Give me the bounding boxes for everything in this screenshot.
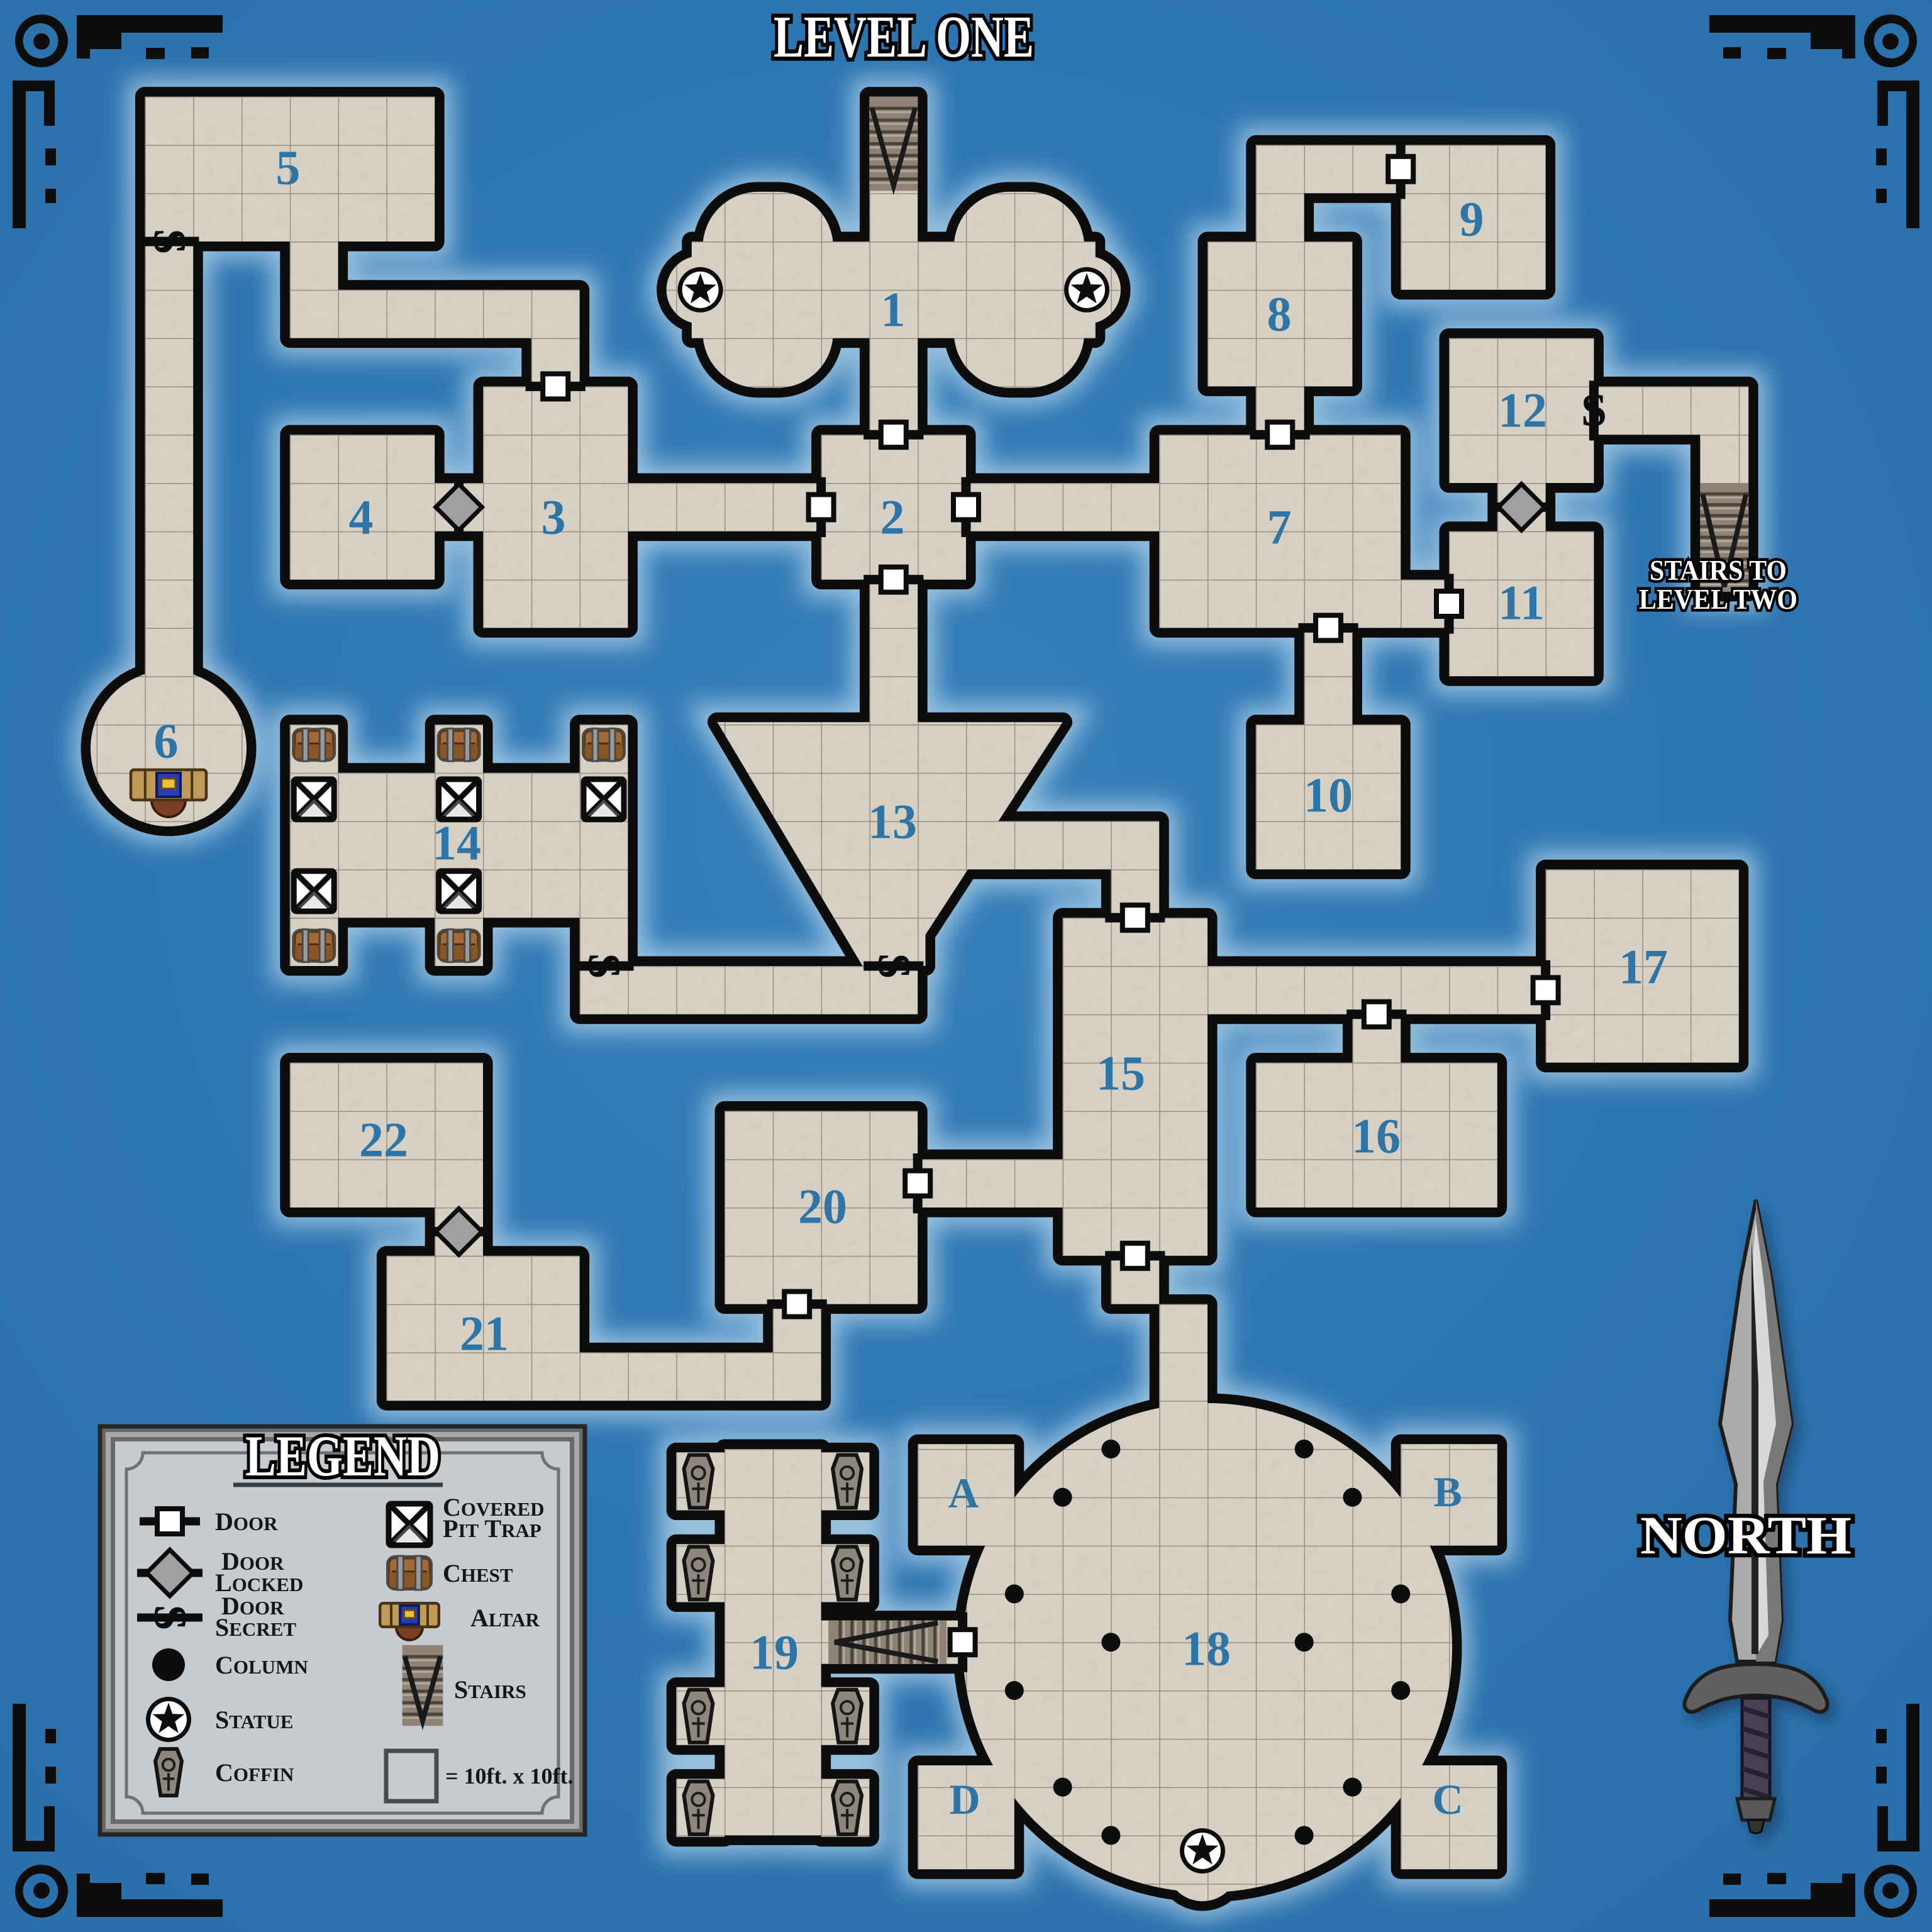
svg-text:17: 17 [1619,940,1668,994]
svg-text:15: 15 [1096,1046,1145,1101]
svg-text:13: 13 [868,794,917,849]
svg-text:S: S [578,953,630,979]
svg-text:NORTH: NORTH [1640,1505,1851,1565]
svg-text:21: 21 [460,1306,509,1361]
svg-text:LEVEL TWO: LEVEL TWO [1639,583,1797,615]
svg-text:LEVEL ONE: LEVEL ONE [774,4,1034,70]
svg-text:11: 11 [1498,575,1545,630]
svg-text:1: 1 [881,282,906,337]
svg-text:16: 16 [1352,1109,1401,1163]
svg-text:S: S [868,953,919,979]
svg-text:5: 5 [276,140,301,195]
svg-text:8: 8 [1267,287,1292,341]
svg-text:18: 18 [1182,1621,1231,1676]
svg-text:10: 10 [1304,768,1353,823]
svg-text:S: S [143,228,195,254]
svg-text:2: 2 [880,490,905,545]
svg-text:20: 20 [798,1179,847,1234]
svg-text:4: 4 [349,490,374,545]
svg-text:9: 9 [1460,192,1484,247]
svg-text:12: 12 [1498,383,1547,438]
svg-text:3: 3 [541,490,566,545]
svg-text:D: D [949,1775,980,1823]
svg-text:B: B [1433,1468,1462,1516]
svg-text:14: 14 [432,816,481,870]
svg-text:22: 22 [359,1113,408,1167]
svg-text:C: C [1432,1775,1463,1823]
svg-text:S: S [1581,385,1607,436]
svg-text:S: S [144,1604,196,1630]
svg-text:LEGEND: LEGEND [245,1424,440,1488]
svg-text:STAIRS TO: STAIRS TO [1650,554,1787,586]
svg-text:19: 19 [750,1625,799,1680]
svg-text:A: A [948,1469,979,1517]
svg-text:7: 7 [1267,500,1292,555]
svg-text:= 10ft. x 10ft.: = 10ft. x 10ft. [445,1763,573,1789]
svg-text:6: 6 [154,714,179,769]
